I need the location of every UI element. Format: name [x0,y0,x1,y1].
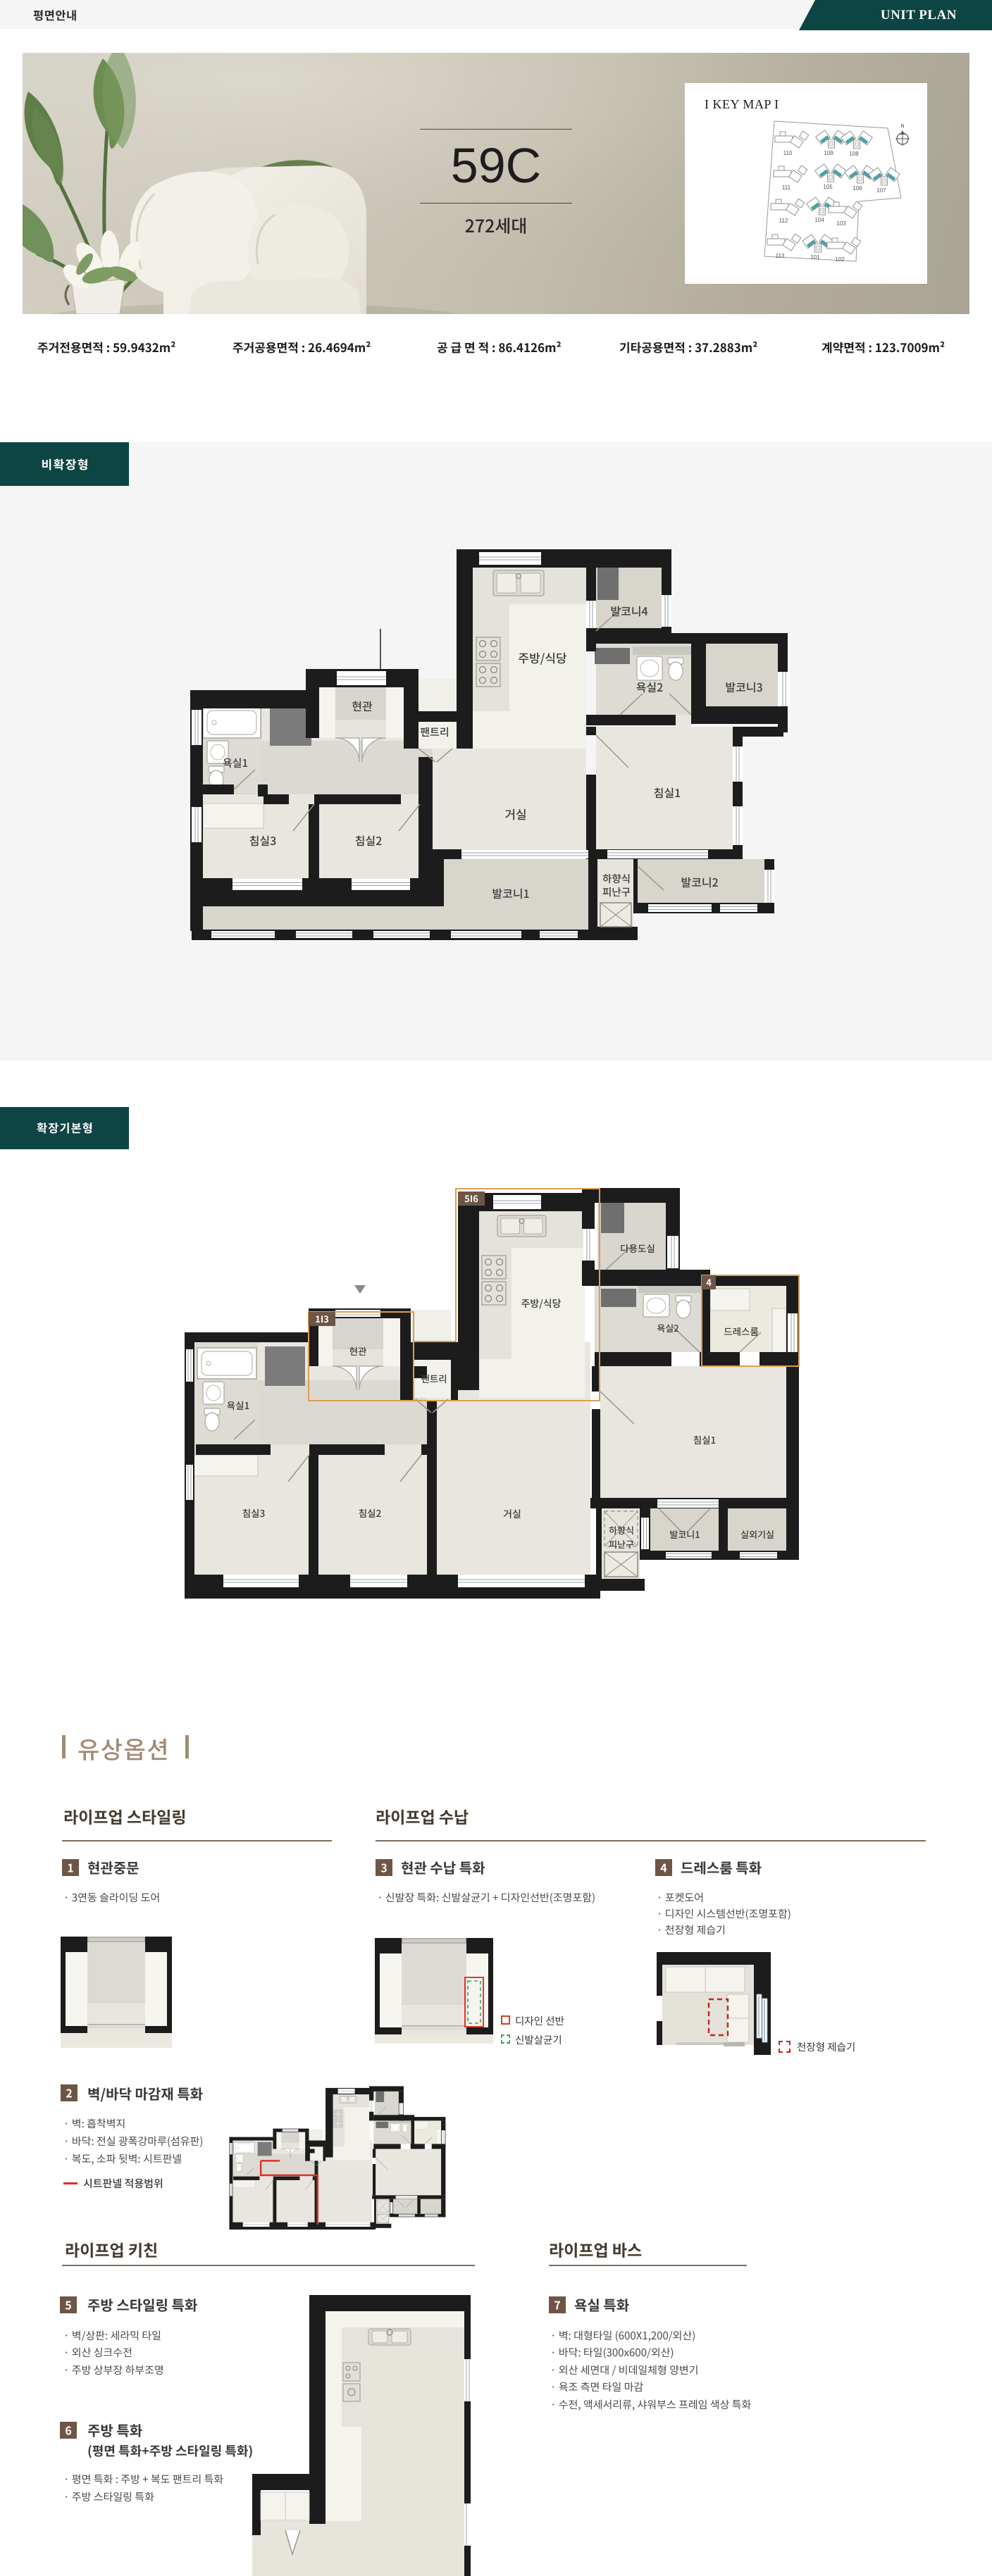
svg-text:113: 113 [776,253,785,259]
svg-text:106: 106 [852,185,862,192]
svg-text:107: 107 [876,187,886,194]
svg-text:108: 108 [849,151,859,157]
svg-text:101: 101 [810,254,820,261]
svg-text:111: 111 [782,185,791,191]
svg-text:102: 102 [835,256,845,263]
svg-text:N: N [900,124,904,129]
svg-text:105: 105 [823,184,833,190]
svg-text:112: 112 [779,218,788,224]
svg-text:109: 109 [824,150,833,156]
svg-text:104: 104 [814,217,824,223]
svg-text:110: 110 [783,150,793,156]
svg-text:103: 103 [836,220,846,227]
